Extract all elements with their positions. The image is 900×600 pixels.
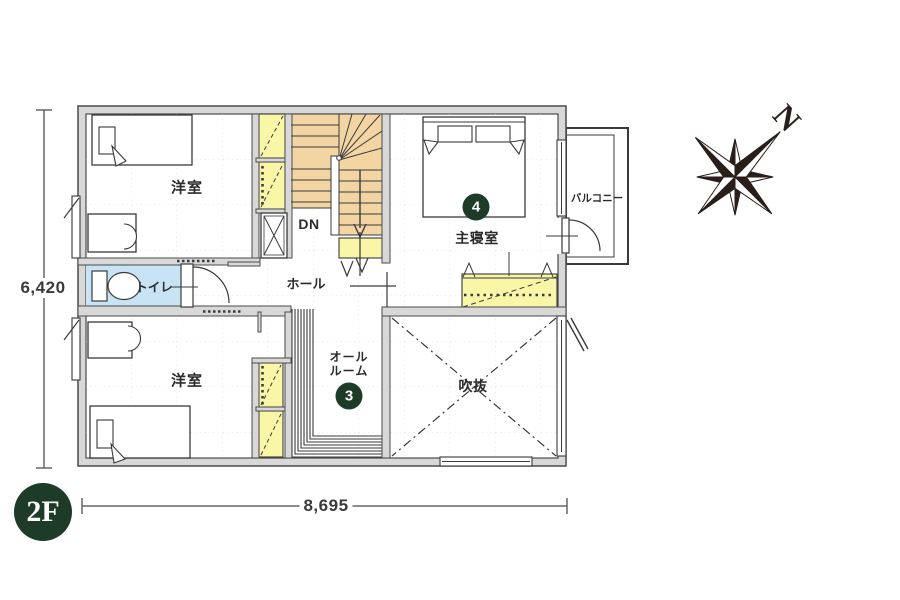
room-label-hall: ホール [286, 274, 325, 293]
floor-badge: 2F [14, 483, 72, 541]
stairs-dn-label: DN [298, 216, 319, 232]
dimension-left-value: 6,420 [16, 278, 69, 298]
floor-plan-drawing: N [0, 0, 900, 600]
floor-badge-text: 2F [26, 495, 59, 529]
room-number-3: 3 [336, 383, 363, 410]
dimension-bottom-value: 8,695 [299, 496, 352, 516]
all-room-label-line1: オール [329, 350, 368, 364]
compass-rose: N [659, 92, 817, 250]
room-number-4-text: 4 [472, 199, 480, 216]
room-number-3-text: 3 [345, 388, 353, 405]
floor-plan-page: N 洋室 洋室 トイレ ホール DN 主寝室 4 バルコニー オール ルーム 3… [0, 0, 900, 600]
room-label-all-room: オール ルーム [329, 350, 368, 378]
room-label-balcony: バルコニー [571, 191, 623, 206]
room-number-4: 4 [463, 194, 490, 221]
compass-north-label: N [766, 97, 808, 138]
storage-box [261, 213, 287, 258]
room-label-master-bedroom: 主寝室 [455, 228, 499, 248]
room-label-toilet: トイレ [135, 277, 173, 296]
room-label-bedroom-top: 洋室 [171, 177, 203, 198]
room-label-bedroom-bottom: 洋室 [171, 370, 203, 391]
room-label-void: 吹抜 [459, 376, 488, 396]
all-room-label-line2: ルーム [329, 364, 368, 378]
